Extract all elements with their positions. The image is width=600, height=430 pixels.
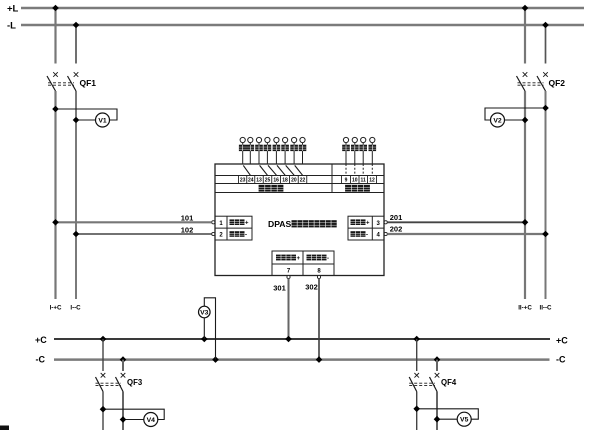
svg-text:18: 18 bbox=[282, 178, 288, 184]
svg-text:QF4: QF4 bbox=[441, 378, 457, 387]
svg-text:202: 202 bbox=[390, 225, 403, 234]
svg-text:25: 25 bbox=[265, 178, 271, 184]
svg-text:11: 11 bbox=[361, 178, 367, 184]
svg-text:201: 201 bbox=[390, 213, 403, 222]
svg-text:302: 302 bbox=[305, 282, 318, 291]
svg-text:I--C: I--C bbox=[70, 305, 81, 312]
svg-text:12: 12 bbox=[369, 178, 375, 184]
svg-text:-: - bbox=[327, 256, 329, 262]
svg-text:QF2: QF2 bbox=[549, 78, 566, 88]
svg-text:II-+C: II-+C bbox=[518, 305, 532, 312]
svg-text:-: - bbox=[245, 232, 247, 238]
svg-text:101: 101 bbox=[181, 214, 194, 223]
svg-text:-L: -L bbox=[7, 21, 16, 32]
svg-text:+C: +C bbox=[556, 336, 568, 346]
svg-text:+: + bbox=[297, 256, 301, 262]
svg-text:9: 9 bbox=[345, 178, 348, 184]
svg-text:22: 22 bbox=[300, 178, 306, 184]
svg-text:20: 20 bbox=[291, 178, 297, 184]
svg-text:QF1: QF1 bbox=[80, 78, 97, 88]
svg-text:II--C: II--C bbox=[539, 305, 552, 312]
svg-text:V5: V5 bbox=[460, 417, 469, 424]
svg-text:V1: V1 bbox=[98, 117, 107, 124]
svg-text:13: 13 bbox=[256, 178, 262, 184]
svg-text:16: 16 bbox=[273, 178, 279, 184]
svg-text:24: 24 bbox=[248, 178, 254, 184]
svg-text:DPAS: DPAS bbox=[268, 219, 292, 229]
svg-text:I-+C: I-+C bbox=[50, 305, 62, 312]
svg-text:-: - bbox=[366, 232, 368, 238]
svg-text:V4: V4 bbox=[147, 417, 156, 424]
svg-text:+L: +L bbox=[7, 4, 19, 15]
svg-text:-C: -C bbox=[556, 355, 566, 365]
svg-text:V3: V3 bbox=[200, 309, 209, 316]
svg-text:301: 301 bbox=[273, 283, 286, 292]
svg-text:23: 23 bbox=[240, 178, 246, 184]
svg-text:102: 102 bbox=[181, 225, 194, 234]
svg-text:10: 10 bbox=[352, 178, 358, 184]
svg-text:V2: V2 bbox=[493, 117, 502, 124]
svg-text:QF3: QF3 bbox=[127, 378, 143, 387]
svg-text:+C: +C bbox=[35, 335, 47, 345]
svg-text:-C: -C bbox=[36, 355, 46, 365]
svg-text:+: + bbox=[366, 221, 370, 227]
svg-text:+: + bbox=[245, 221, 249, 227]
